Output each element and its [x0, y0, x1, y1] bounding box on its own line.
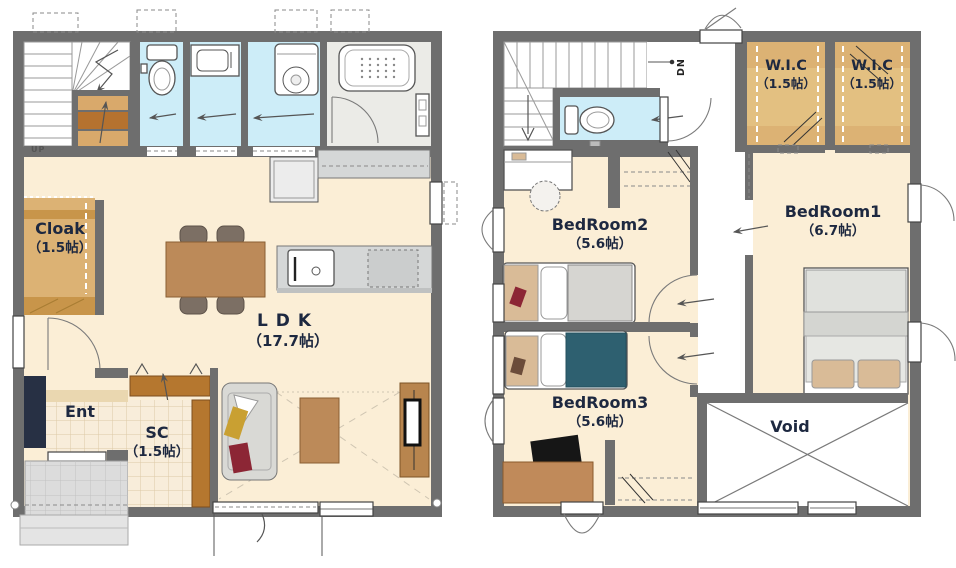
- window-icon: [493, 208, 504, 252]
- bedroom1-name: BedRoom1: [768, 202, 898, 223]
- sc-area: （1.5帖）: [118, 444, 196, 462]
- washroom-1f: [190, 42, 241, 146]
- void-area: [697, 393, 908, 506]
- laundry-room-1f: [248, 42, 320, 146]
- refrigerator-icon: [270, 157, 318, 202]
- sc-label: SC （1.5帖）: [118, 423, 196, 461]
- ldk-label: LDK （17.7帖）: [222, 310, 354, 352]
- cloak-area: （1.5帖）: [24, 240, 96, 258]
- bed-icon: [503, 263, 635, 323]
- bedroom3-name: BedRoom3: [535, 393, 665, 414]
- wic-right-name: W.I.C: [833, 57, 911, 76]
- desk-chair-icon: [530, 181, 560, 211]
- window-icon: [561, 502, 603, 514]
- sc-counter-icon: [130, 376, 210, 396]
- cloak-label: Cloak （1.5帖）: [24, 219, 96, 257]
- bedroom2-label: BedRoom2 （5.6帖）: [535, 215, 665, 253]
- window-icon: [493, 336, 504, 394]
- tv-board-icon: [400, 383, 429, 477]
- window-icon: [493, 398, 504, 444]
- window-icon: [908, 322, 921, 362]
- floor-plan-canvas: UP Cloak （1.5帖） LDK （17.7帖） Ent SC （1.5帖…: [0, 0, 956, 568]
- coffee-table-icon: [300, 398, 339, 463]
- door-icon: [660, 97, 668, 142]
- wic-left-area: （1.5帖）: [747, 76, 825, 92]
- floor1-plan: [11, 10, 457, 556]
- front-door-icon: [48, 452, 106, 461]
- wic-right-label: W.I.C （1.5帖）: [833, 57, 911, 92]
- window-icon: [493, 284, 504, 322]
- ldk-area: （17.7帖）: [222, 332, 354, 352]
- porch: [20, 461, 128, 545]
- window-icon: [908, 184, 921, 222]
- bedroom2-area: （5.6帖）: [535, 236, 665, 254]
- kitchen-island-icon: [277, 246, 432, 293]
- sofa-icon: [222, 383, 277, 480]
- ent-name: Ent: [54, 402, 106, 423]
- tv-icon: [405, 400, 420, 445]
- bed-icon: [505, 331, 627, 389]
- bathtub-icon: [339, 45, 415, 91]
- ent-label: Ent: [54, 402, 106, 423]
- window-icon: [700, 30, 742, 43]
- kitchen-cabinet-icon: [318, 150, 430, 178]
- toilet-room-1f: [140, 42, 183, 146]
- wic-right-area: （1.5帖）: [833, 76, 911, 92]
- sc-name: SC: [118, 423, 196, 444]
- dining-chair-icon: [180, 295, 207, 314]
- bedroom1-area: （6.7帖）: [768, 223, 898, 241]
- wic-left-name: W.I.C: [747, 57, 825, 76]
- bedroom1-label: BedRoom1 （6.7帖）: [768, 202, 898, 240]
- bedroom2-name: BedRoom2: [535, 215, 665, 236]
- dining-table-icon: [166, 242, 265, 297]
- window-icon: [430, 182, 442, 224]
- shutter-box-outline: [444, 182, 457, 224]
- vanity-sink-icon: [191, 45, 239, 76]
- bath-counter-icon: [416, 94, 429, 136]
- toilet-icon: [565, 106, 614, 134]
- stairs-up-label: UP: [31, 145, 45, 154]
- stair-storage-1f: [72, 90, 130, 146]
- window-icon: [13, 316, 24, 368]
- bedroom3-label: BedRoom3 （5.6帖）: [535, 393, 665, 431]
- void-name: Void: [758, 417, 822, 438]
- shoe-cabinet-icon: [24, 376, 46, 448]
- bedroom3-area: （5.6帖）: [535, 414, 665, 432]
- washing-machine-icon: [275, 44, 318, 95]
- void-label: Void: [758, 417, 822, 438]
- wic-left-label: W.I.C （1.5帖）: [747, 57, 825, 92]
- bed-icon: [804, 268, 908, 394]
- cloak-name: Cloak: [24, 219, 96, 240]
- bathroom-1f: [327, 42, 431, 146]
- ldk-name: LDK: [222, 310, 354, 332]
- stairs-dn-label: DN: [676, 58, 687, 76]
